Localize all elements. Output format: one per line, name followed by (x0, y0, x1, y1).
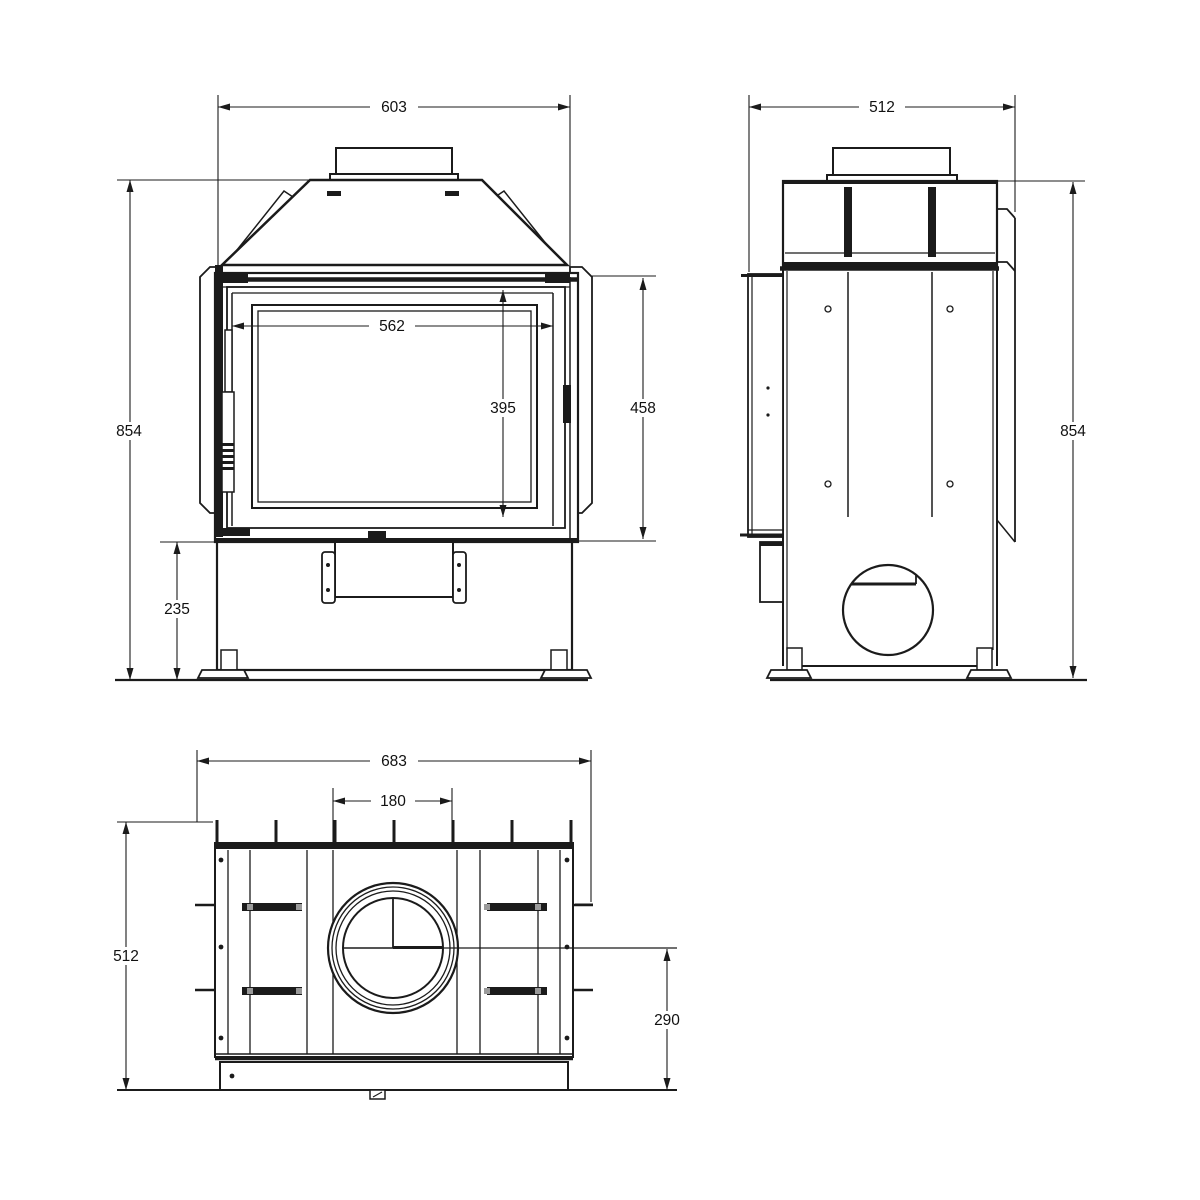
dim-top-depth: 512 (106, 822, 213, 1090)
dim-label-854-side: 854 (1060, 423, 1086, 440)
dim-label-562: 562 (379, 318, 405, 335)
casing-mark-bottom-center (368, 531, 386, 538)
rear-edge-ticks (217, 820, 571, 844)
side-front-foot (767, 648, 811, 678)
technical-drawing-page: 603 854 562 395 458 23 (0, 0, 1200, 1200)
dim-label-290: 290 (654, 1012, 680, 1029)
dim-label-683: 683 (381, 753, 407, 770)
dim-label-512-top: 512 (113, 948, 139, 965)
casing-mark-bottom-left (223, 528, 250, 536)
side-flue-collar (827, 148, 957, 183)
dim-label-235: 235 (164, 601, 190, 618)
casing-mark-top-left (223, 274, 248, 283)
dim-label-395: 395 (490, 400, 516, 417)
dim-base-height: 235 (157, 542, 217, 680)
mounting-plate (322, 542, 466, 603)
side-view: 512 854 (740, 95, 1095, 680)
dim-label-854-front: 854 (116, 423, 142, 440)
top-front-panel (117, 1054, 677, 1099)
dim-label-458: 458 (630, 400, 656, 417)
dim-label-512-side: 512 (869, 99, 895, 116)
side-lower-cover (760, 542, 783, 602)
front-hood (222, 180, 567, 265)
dim-label-180: 180 (380, 793, 406, 810)
rear-brackets (997, 209, 1015, 542)
side-rear-foot (967, 648, 1011, 678)
casing-mark-top-right (545, 274, 570, 283)
side-hood (783, 181, 997, 266)
fireplace-insert-drawing: 603 854 562 395 458 23 (0, 0, 1200, 1200)
dim-flue-center: 290 (647, 949, 687, 1090)
front-flue-collar (330, 148, 458, 182)
air-intake-port (843, 565, 933, 655)
top-view: 683 180 512 290 (106, 750, 687, 1099)
front-view: 603 854 562 395 458 23 (108, 95, 663, 680)
hood-vent-dash-right (445, 191, 459, 196)
hood-vent-dash-left (327, 191, 341, 196)
dim-side-height: 854 (997, 181, 1095, 678)
side-door-panel (740, 274, 783, 537)
dim-label-603: 603 (381, 99, 407, 116)
